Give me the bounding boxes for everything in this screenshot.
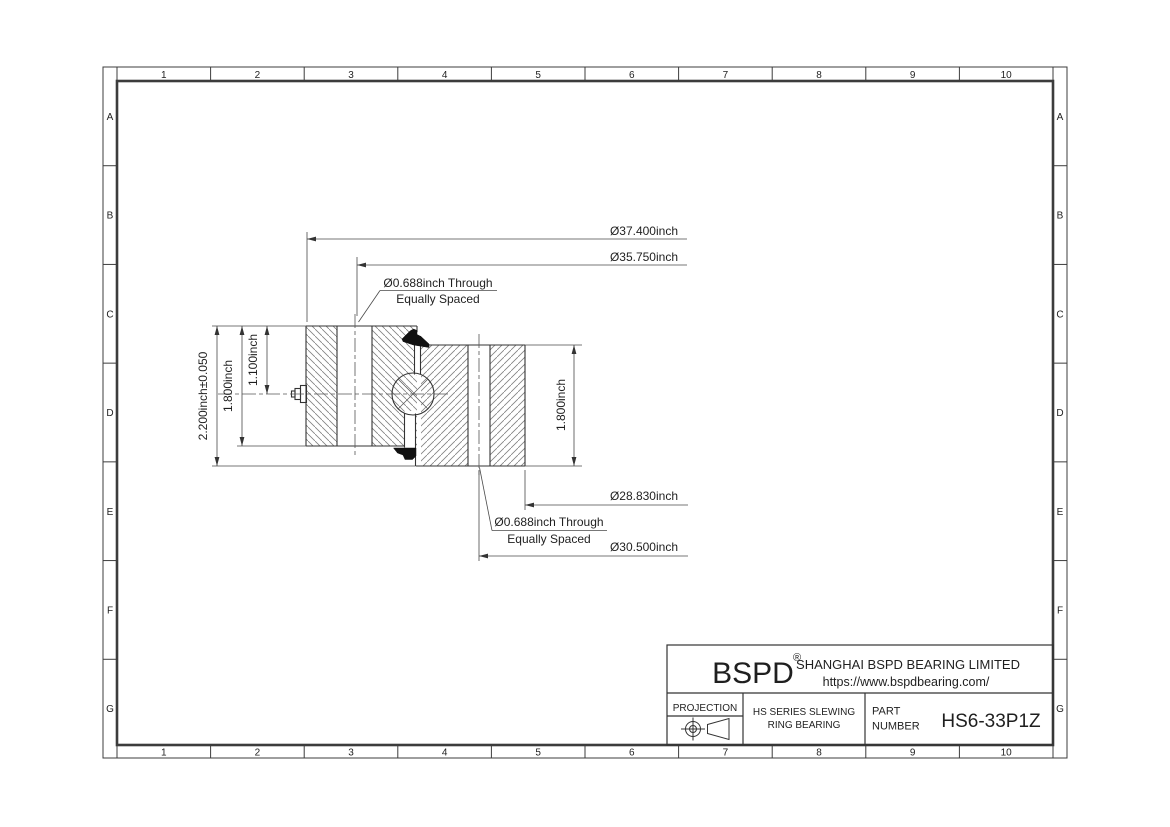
grid-row-label-left: B: [107, 211, 114, 222]
grid-row-label-left: C: [106, 309, 113, 320]
dim-outer-ring-height: 1.800inch: [221, 360, 235, 412]
dim-outer-bolt-circle: Ø35.750inch: [610, 250, 678, 264]
grid-col-label-bottom: 10: [1001, 747, 1013, 758]
dim-overall-height: 2.200inch±0.050: [196, 351, 210, 440]
note-top-hole-line1: Ø0.688inch Through: [383, 276, 492, 290]
grid-col-label-bottom: 4: [442, 747, 448, 758]
grid-col-label-bottom: 1: [161, 747, 167, 758]
grid-row-label-right: E: [1057, 507, 1064, 518]
part-number-label-line2: NUMBER: [872, 721, 920, 733]
grid-row-label-left: A: [107, 112, 114, 123]
grid-col-label-bottom: 3: [348, 747, 354, 758]
grid-col-label-top: 9: [910, 70, 916, 81]
grid-row-label-right: G: [1056, 704, 1064, 715]
dim-outer-diameter: Ø37.400inch: [610, 224, 678, 238]
page-background: [0, 0, 1170, 827]
grid-row-label-right: A: [1057, 112, 1064, 123]
grid-col-label-bottom: 5: [535, 747, 541, 758]
grid-col-label-top: 10: [1001, 70, 1013, 81]
grid-col-label-top: 5: [535, 70, 541, 81]
note-bottom-hole-line2: Equally Spaced: [507, 532, 590, 546]
grid-row-label-right: F: [1057, 606, 1063, 617]
grid-col-label-top: 4: [442, 70, 448, 81]
grid-row-label-right: C: [1056, 309, 1063, 320]
grid-col-label-bottom: 6: [629, 747, 635, 758]
part-number-value: HS6-33P1Z: [941, 711, 1041, 732]
grid-col-label-bottom: 9: [910, 747, 916, 758]
dim-inner-ring-height: 1.800inch: [554, 379, 568, 431]
grid-col-label-top: 6: [629, 70, 635, 81]
company-logo: BSPD: [712, 657, 794, 690]
grid-col-label-bottom: 8: [816, 747, 822, 758]
grid-row-label-left: G: [106, 704, 114, 715]
part-number-label-line1: PART: [872, 706, 901, 718]
grid-row-label-right: B: [1057, 211, 1064, 222]
note-bottom-hole-line1: Ø0.688inch Through: [494, 515, 603, 529]
dim-grease-fitting-height: 1.100inch: [246, 334, 260, 386]
grid-row-label-left: D: [106, 408, 113, 419]
grid-col-label-top: 3: [348, 70, 354, 81]
grid-col-label-top: 8: [816, 70, 822, 81]
grid-row-label-left: E: [107, 507, 114, 518]
company-website: https://www.bspdbearing.com/: [823, 675, 990, 689]
grid-col-label-top: 2: [255, 70, 261, 81]
dim-inner-bolt-circle: Ø30.500inch: [610, 540, 678, 554]
series-name-line1: HS SERIES SLEWING: [753, 707, 855, 718]
company-name: SHANGHAI BSPD BEARING LIMITED: [796, 657, 1020, 672]
note-top-hole-line2: Equally Spaced: [396, 292, 479, 306]
drawing-page: 1122334455667788991010AABBCCDDEEFFGG: [0, 0, 1170, 827]
engineering-drawing-canvas: 1122334455667788991010AABBCCDDEEFFGG: [0, 0, 1170, 827]
grid-col-label-top: 7: [723, 70, 729, 81]
grid-row-label-left: F: [107, 606, 113, 617]
lower-seal-gap: [405, 411, 416, 448]
dim-inner-diameter: Ø28.830inch: [610, 489, 678, 503]
grid-col-label-top: 1: [161, 70, 167, 81]
grid-col-label-bottom: 7: [723, 747, 729, 758]
grid-row-label-right: D: [1056, 408, 1063, 419]
projection-label: PROJECTION: [673, 703, 737, 714]
series-name-line2: RING BEARING: [768, 720, 841, 731]
grid-col-label-bottom: 2: [255, 747, 261, 758]
